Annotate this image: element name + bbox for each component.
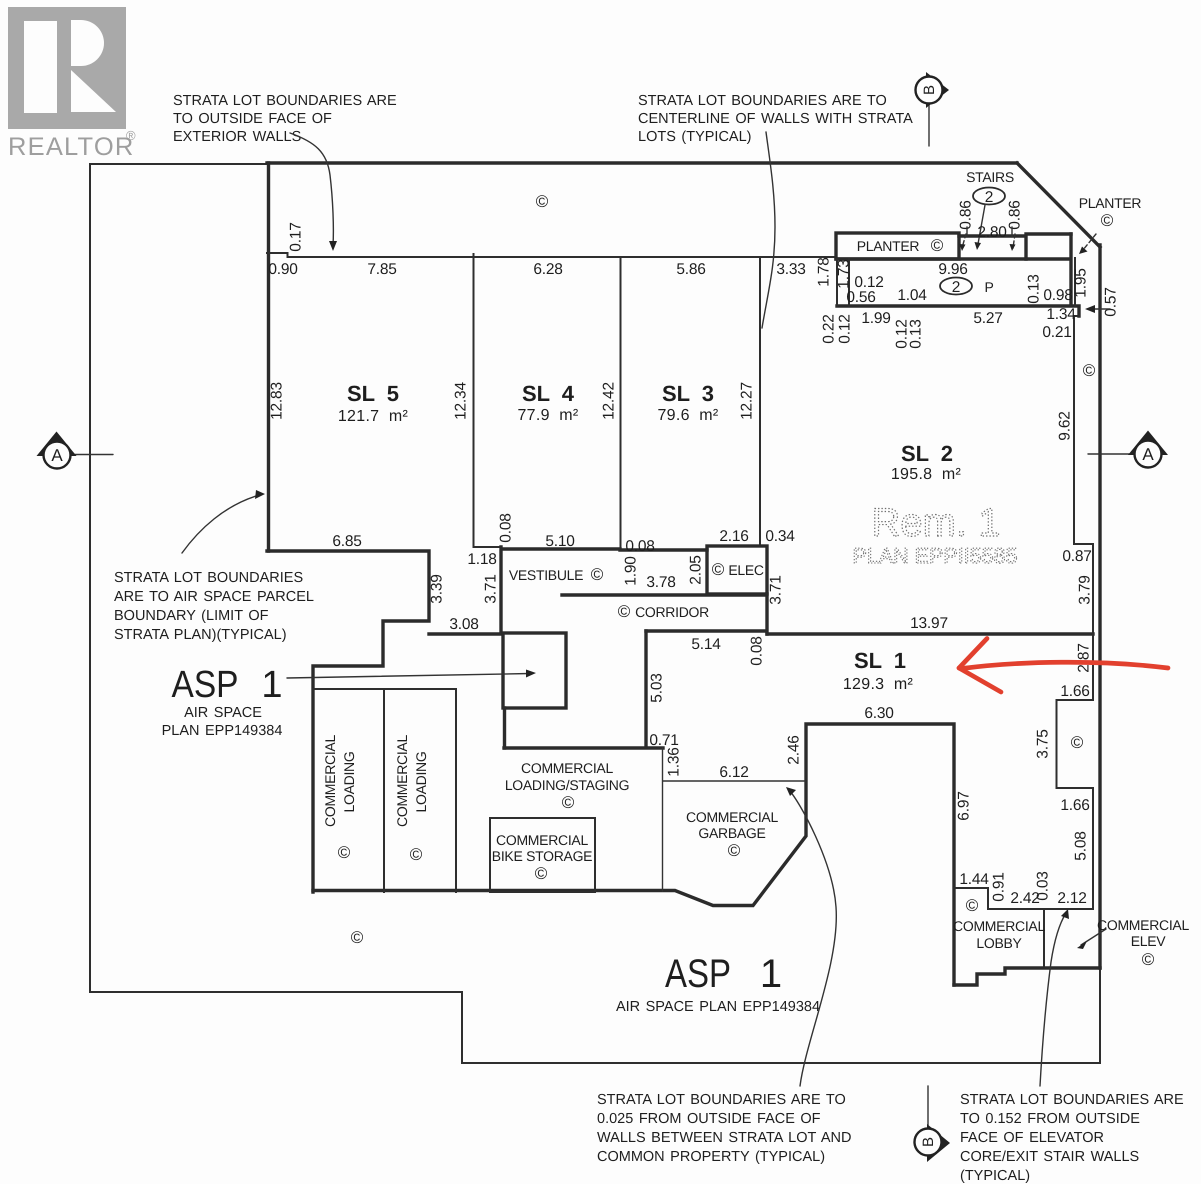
svg-text:0.86: 0.86	[1007, 200, 1024, 229]
svg-text:PLAN EPP149384: PLAN EPP149384	[162, 723, 283, 739]
svg-text:AIR SPACE: AIR SPACE	[184, 705, 262, 721]
svg-text:LOBBY: LOBBY	[976, 935, 1022, 951]
svg-text:©: ©	[1101, 211, 1114, 230]
svg-text:5.10: 5.10	[545, 533, 575, 550]
svg-text:6.28: 6.28	[533, 261, 562, 278]
svg-text:13.97: 13.97	[910, 615, 948, 632]
svg-text:0.08: 0.08	[498, 513, 515, 542]
svg-text:PLANTER: PLANTER	[1079, 195, 1142, 211]
svg-text:0.98: 0.98	[1043, 287, 1072, 304]
svg-text:ASP1: ASP1	[665, 952, 782, 996]
svg-text:0.03: 0.03	[1035, 871, 1052, 900]
svg-text:2.46: 2.46	[786, 735, 803, 764]
svg-text:Rem. 1: Rem. 1	[872, 501, 1001, 545]
svg-text:P: P	[984, 279, 993, 295]
svg-text:0.025 FROM OUTSIDE FACE OF: 0.025 FROM OUTSIDE FACE OF	[597, 1111, 821, 1127]
svg-text:COMMERCIAL: COMMERCIAL	[1097, 917, 1189, 933]
svg-text:©: ©	[410, 845, 423, 864]
svg-text:EXTERIOR WALLS: EXTERIOR WALLS	[173, 129, 301, 145]
svg-text:1.90: 1.90	[623, 556, 640, 586]
svg-text:B: B	[920, 1137, 937, 1147]
svg-text:12.27: 12.27	[739, 382, 756, 420]
svg-text:12.83: 12.83	[269, 382, 286, 420]
svg-text:1.36: 1.36	[666, 747, 683, 776]
svg-text:SL 5: SL 5	[347, 381, 399, 406]
svg-text:5.86: 5.86	[676, 261, 705, 278]
svg-text:COMMERCIAL: COMMERCIAL	[496, 832, 588, 848]
svg-text:1.34: 1.34	[1046, 306, 1076, 323]
svg-text:ASP1: ASP1	[172, 664, 283, 706]
svg-text:1.95: 1.95	[1073, 268, 1090, 297]
svg-text:SL 1: SL 1	[854, 648, 906, 673]
svg-text:(TYPICAL): (TYPICAL)	[960, 1168, 1030, 1184]
svg-text:1.04: 1.04	[897, 287, 927, 304]
svg-text:©: ©	[338, 843, 351, 862]
svg-text:LOADING: LOADING	[413, 752, 429, 813]
svg-text:0.17: 0.17	[288, 222, 305, 251]
svg-text:0.13: 0.13	[1026, 274, 1043, 303]
svg-text:3.33: 3.33	[776, 261, 805, 278]
svg-text:1.99: 1.99	[861, 310, 890, 327]
svg-text:©: ©	[966, 896, 979, 915]
svg-text:0.12: 0.12	[837, 314, 854, 343]
svg-text:VESTIBULE: VESTIBULE	[509, 567, 583, 583]
svg-text:CORRIDOR: CORRIDOR	[635, 604, 709, 620]
svg-text:©: ©	[618, 602, 631, 621]
svg-text:FACE OF ELEVATOR: FACE OF ELEVATOR	[960, 1130, 1104, 1146]
svg-text:1.78: 1.78	[816, 257, 833, 286]
svg-text:5.27: 5.27	[973, 310, 1002, 327]
svg-text:1.66: 1.66	[1060, 797, 1089, 814]
svg-text:B: B	[921, 85, 938, 95]
svg-text:GARBAGE: GARBAGE	[698, 825, 765, 841]
svg-text:5.03: 5.03	[649, 673, 666, 702]
svg-text:SL 4: SL 4	[522, 381, 575, 406]
svg-text:ELEC: ELEC	[728, 562, 764, 578]
svg-text:0.13: 0.13	[908, 319, 925, 348]
svg-text:12.34: 12.34	[453, 382, 470, 420]
svg-text:0.57: 0.57	[1103, 287, 1120, 316]
svg-text:LOADING: LOADING	[341, 752, 357, 813]
svg-text:©: ©	[562, 793, 575, 812]
svg-text:STRATA PLAN)(TYPICAL): STRATA PLAN)(TYPICAL)	[114, 627, 287, 643]
svg-text:STRATA LOT BOUNDARIES ARE TO: STRATA LOT BOUNDARIES ARE TO	[638, 93, 887, 109]
svg-text:STRATA LOT BOUNDARIES ARE: STRATA LOT BOUNDARIES ARE	[960, 1092, 1184, 1108]
svg-text:ARE TO AIR SPACE PARCEL: ARE TO AIR SPACE PARCEL	[114, 589, 314, 605]
svg-text:3.71: 3.71	[768, 575, 785, 604]
svg-text:©: ©	[536, 192, 549, 211]
svg-text:©: ©	[351, 928, 364, 947]
svg-text:3.39: 3.39	[429, 574, 446, 603]
svg-text:6.12: 6.12	[719, 764, 748, 781]
svg-text:0.91: 0.91	[991, 872, 1008, 901]
svg-text:STAIRS: STAIRS	[966, 169, 1014, 185]
svg-text:0.08: 0.08	[749, 636, 766, 665]
svg-text:2: 2	[952, 279, 960, 296]
svg-text:©: ©	[1142, 950, 1155, 969]
svg-text:AIR SPACE PLAN EPP149384: AIR SPACE PLAN EPP149384	[616, 999, 820, 1015]
svg-text:3.71: 3.71	[483, 574, 500, 603]
svg-text:®: ®	[126, 128, 136, 143]
svg-text:5.08: 5.08	[1073, 831, 1090, 860]
svg-text:9.62: 9.62	[1057, 411, 1074, 440]
svg-text:2.80: 2.80	[977, 224, 1007, 241]
svg-text:©: ©	[728, 841, 741, 860]
svg-text:1.18: 1.18	[467, 551, 496, 568]
svg-text:6.30: 6.30	[864, 705, 894, 722]
svg-text:1.44: 1.44	[959, 871, 989, 888]
svg-text:CENTERLINE OF WALLS WITH STRAT: CENTERLINE OF WALLS WITH STRATA	[638, 111, 913, 127]
svg-text:6.85: 6.85	[332, 533, 361, 550]
svg-text:3.79: 3.79	[1077, 575, 1094, 604]
svg-text:TO 0.152 FROM OUTSIDE: TO 0.152 FROM OUTSIDE	[960, 1111, 1140, 1127]
svg-text:12.42: 12.42	[601, 382, 618, 420]
svg-text:SL 3: SL 3	[662, 381, 714, 406]
svg-text:0.87: 0.87	[1062, 548, 1091, 565]
svg-text:2.87: 2.87	[1076, 643, 1093, 672]
svg-text:COMMERCIAL: COMMERCIAL	[521, 760, 613, 776]
svg-text:1.73: 1.73	[836, 259, 853, 288]
svg-text:2: 2	[985, 189, 993, 206]
svg-text:SL 2: SL 2	[901, 441, 953, 466]
svg-text:0.71: 0.71	[649, 732, 678, 749]
svg-text:COMMERCIAL: COMMERCIAL	[394, 735, 410, 827]
svg-text:79.6 m²: 79.6 m²	[657, 407, 718, 424]
svg-text:STRATA LOT BOUNDARIES: STRATA LOT BOUNDARIES	[114, 570, 303, 586]
svg-text:©: ©	[931, 236, 944, 255]
svg-text:©: ©	[712, 560, 725, 579]
svg-text:CORE/EXIT STAIR WALLS: CORE/EXIT STAIR WALLS	[960, 1149, 1139, 1165]
svg-text:121.7 m²: 121.7 m²	[338, 408, 409, 425]
svg-text:STRATA LOT BOUNDARIES ARE TO: STRATA LOT BOUNDARIES ARE TO	[597, 1092, 846, 1108]
svg-text:1.66: 1.66	[1060, 683, 1089, 700]
svg-text:©: ©	[1071, 733, 1084, 752]
svg-text:0.08: 0.08	[625, 538, 654, 555]
svg-text:0.86: 0.86	[958, 200, 975, 229]
svg-text:2.16: 2.16	[719, 528, 748, 545]
svg-text:9.96: 9.96	[938, 261, 967, 278]
svg-text:WALLS BETWEEN STRATA LOT AND: WALLS BETWEEN STRATA LOT AND	[597, 1130, 851, 1146]
svg-text:BIKE STORAGE: BIKE STORAGE	[492, 848, 592, 864]
svg-text:COMMERCIAL: COMMERCIAL	[953, 918, 1045, 934]
svg-text:COMMERCIAL: COMMERCIAL	[686, 809, 778, 825]
svg-text:3.78: 3.78	[646, 574, 675, 591]
svg-text:COMMERCIAL: COMMERCIAL	[322, 735, 338, 827]
svg-text:REALTOR: REALTOR	[8, 133, 135, 161]
svg-text:PLANTER: PLANTER	[857, 238, 920, 254]
svg-text:TO OUTSIDE FACE OF: TO OUTSIDE FACE OF	[173, 111, 332, 127]
svg-text:A: A	[1142, 445, 1154, 464]
svg-text:0.21: 0.21	[1042, 324, 1071, 341]
svg-text:0.22: 0.22	[821, 314, 838, 343]
svg-text:77.9 m²: 77.9 m²	[517, 407, 578, 424]
svg-text:LOTS (TYPICAL): LOTS (TYPICAL)	[638, 129, 752, 145]
svg-text:0.34: 0.34	[765, 528, 795, 545]
svg-text:PLAN EPPII5585: PLAN EPPII5585	[853, 544, 1018, 568]
svg-text:7.85: 7.85	[367, 261, 396, 278]
svg-text:A: A	[51, 446, 63, 465]
svg-text:LOADING/STAGING: LOADING/STAGING	[505, 777, 629, 793]
svg-text:STRATA LOT BOUNDARIES ARE: STRATA LOT BOUNDARIES ARE	[173, 93, 397, 109]
svg-text:2.05: 2.05	[688, 555, 705, 584]
svg-text:3.08: 3.08	[449, 616, 478, 633]
svg-text:0.56: 0.56	[846, 289, 875, 306]
svg-text:2.12: 2.12	[1057, 890, 1086, 907]
svg-text:5.14: 5.14	[691, 636, 721, 653]
svg-text:©: ©	[535, 864, 548, 883]
svg-text:©: ©	[1083, 361, 1096, 380]
svg-text:ELEV: ELEV	[1131, 933, 1167, 949]
svg-text:129.3 m²: 129.3 m²	[843, 676, 914, 693]
svg-text:0.90: 0.90	[268, 261, 298, 278]
svg-text:6.97: 6.97	[956, 791, 973, 820]
svg-text:BOUNDARY (LIMIT OF: BOUNDARY (LIMIT OF	[114, 608, 269, 624]
svg-text:©: ©	[591, 565, 604, 584]
svg-text:COMMON PROPERTY (TYPICAL): COMMON PROPERTY (TYPICAL)	[597, 1149, 825, 1165]
svg-text:195.8 m²: 195.8 m²	[891, 466, 962, 483]
svg-text:3.75: 3.75	[1035, 729, 1052, 758]
